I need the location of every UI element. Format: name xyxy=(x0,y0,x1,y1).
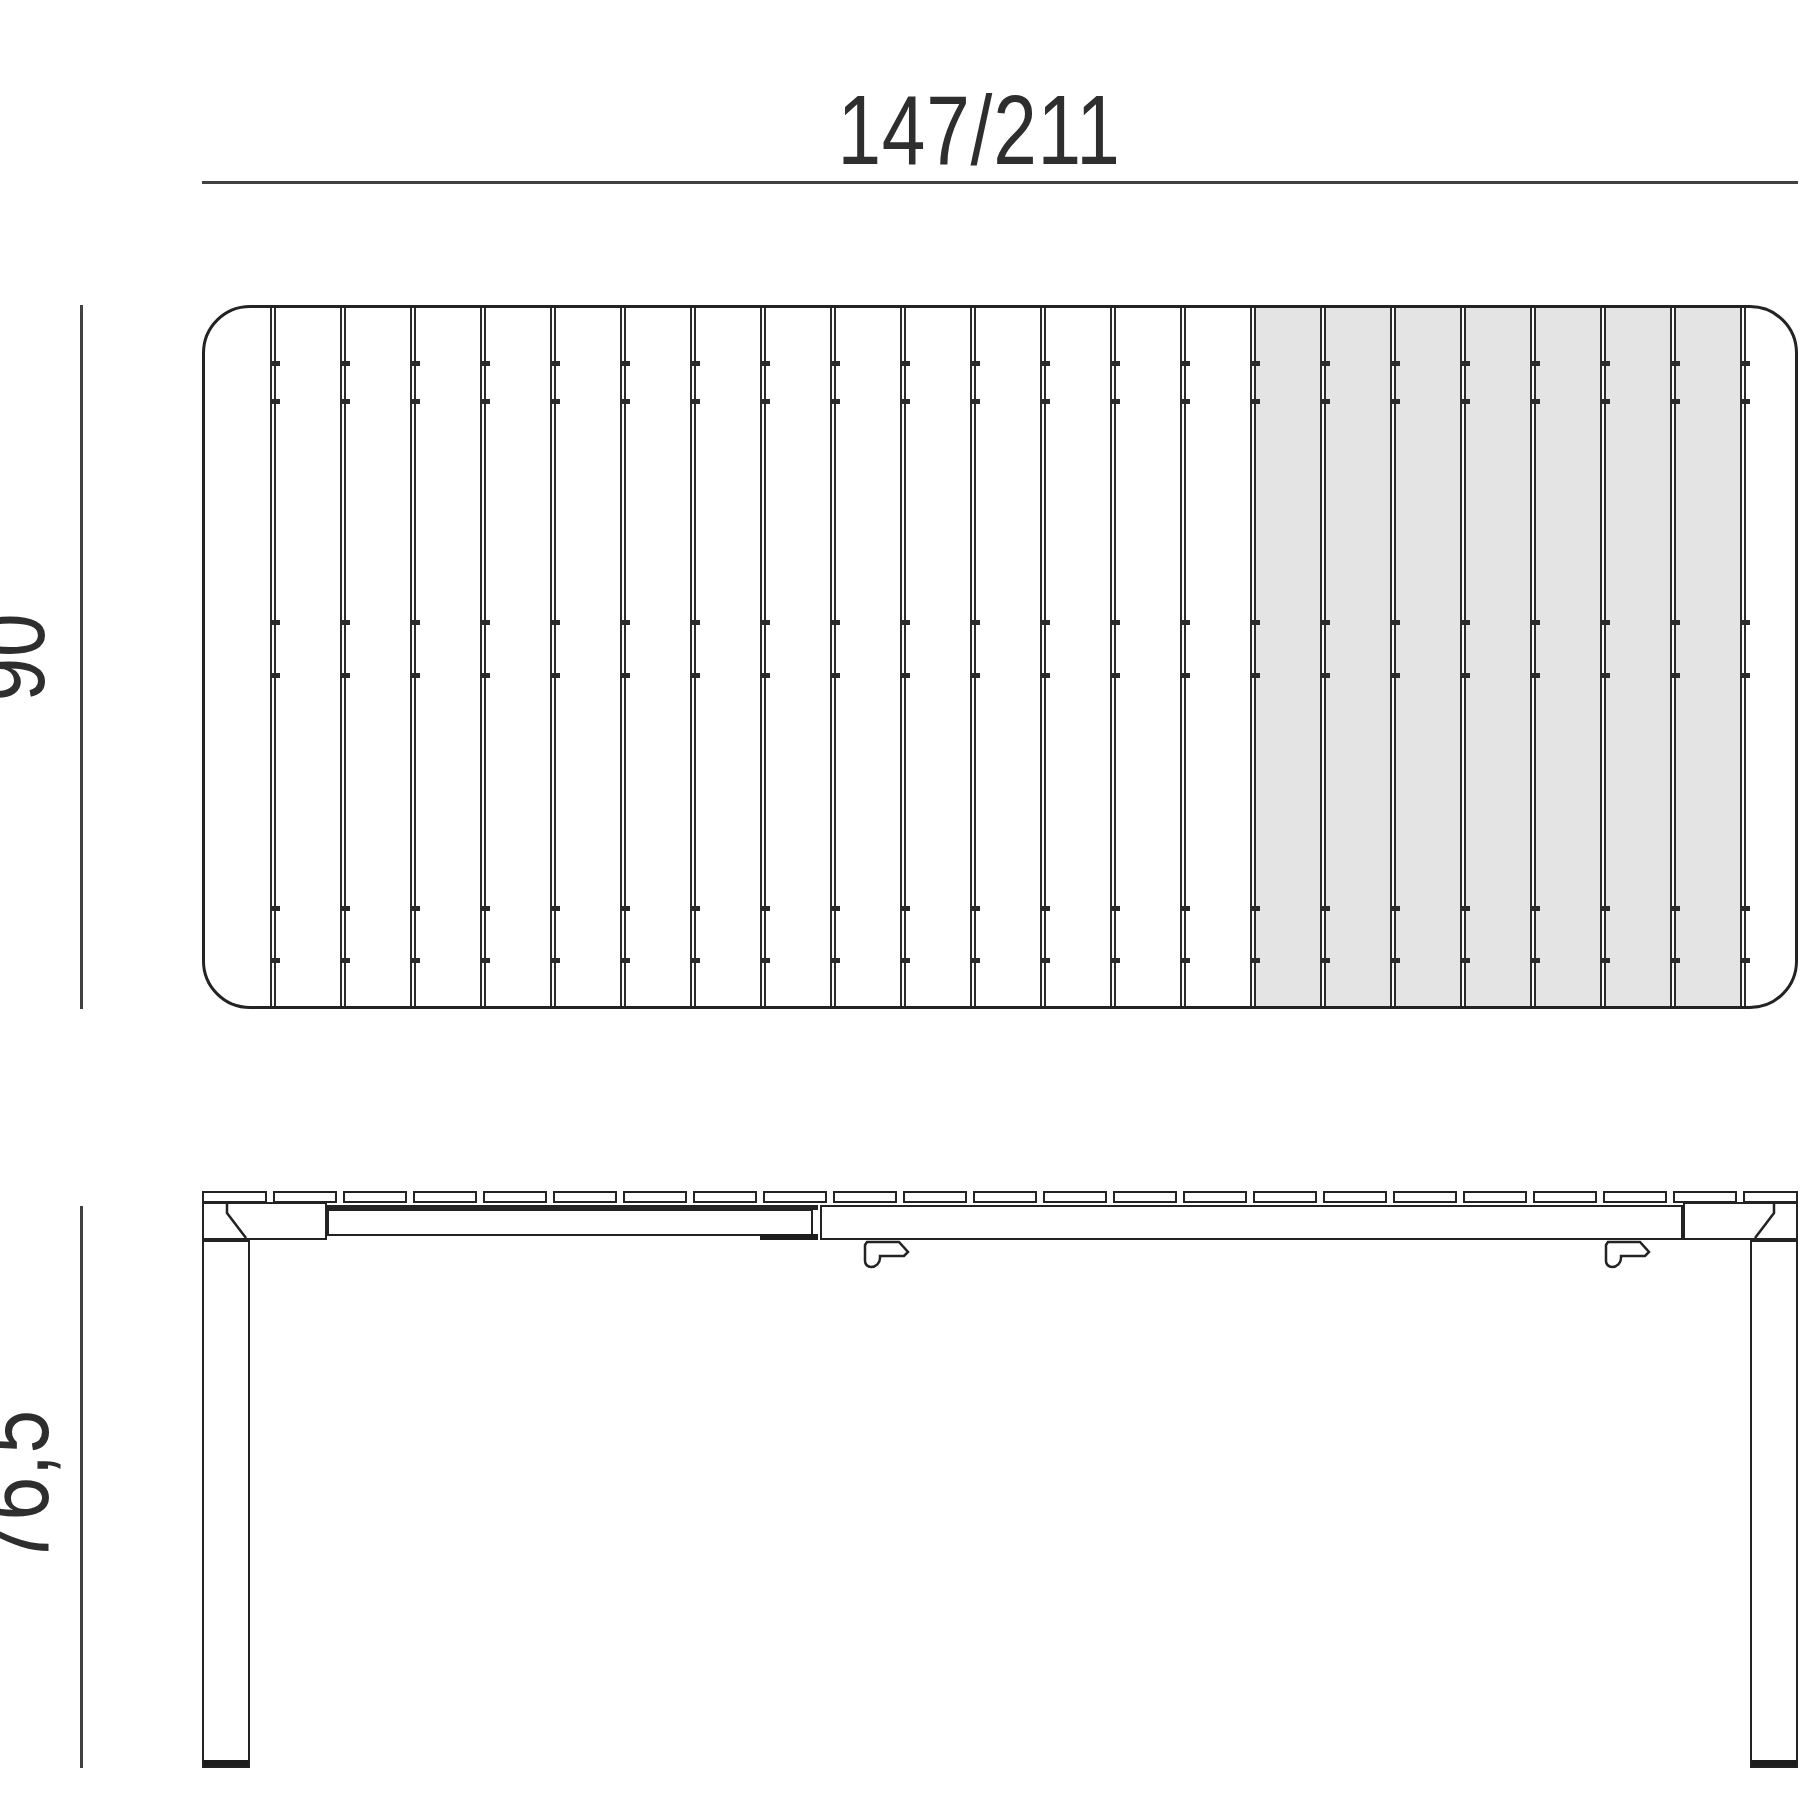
slat-clip-tick xyxy=(1320,620,1330,625)
slat-clip-tick xyxy=(1040,958,1050,963)
slat-gap xyxy=(1600,308,1606,1006)
slat-clip-tick xyxy=(620,673,630,678)
slat-clip-tick xyxy=(1040,673,1050,678)
slat-clip-tick xyxy=(410,620,420,625)
slat-clip-tick xyxy=(1320,399,1330,404)
slat-clip-tick xyxy=(1250,673,1260,678)
slat-clip-tick xyxy=(620,906,630,911)
height-dimension-line xyxy=(80,1206,83,1768)
slat-clip-tick xyxy=(550,958,560,963)
slat-gap xyxy=(690,308,696,1006)
slat-gap xyxy=(550,308,556,1006)
slat-clip-tick xyxy=(1740,958,1750,963)
height-dimension-label: 76,5 xyxy=(0,1409,63,1565)
leg-chamfer-line xyxy=(1755,1204,1774,1238)
slat-clip-tick xyxy=(970,399,980,404)
slat-clip-tick xyxy=(1040,906,1050,911)
slat-clip-tick xyxy=(830,399,840,404)
slat-clip-tick xyxy=(270,361,280,366)
slat-clip-tick xyxy=(1670,958,1680,963)
slat-clip-tick xyxy=(1110,620,1120,625)
slat-clip-tick xyxy=(900,958,910,963)
slat-clip-tick xyxy=(620,361,630,366)
slat-gap xyxy=(830,308,836,1006)
slat-clip-tick xyxy=(340,673,350,678)
slat-clip-tick xyxy=(1250,399,1260,404)
slat-clip-tick xyxy=(970,906,980,911)
slat-clip-tick xyxy=(1180,673,1190,678)
slat-clip-tick xyxy=(1390,673,1400,678)
slat-clip-tick xyxy=(340,906,350,911)
slat-clip-tick xyxy=(1460,958,1470,963)
slat-clip-tick xyxy=(1180,620,1190,625)
slat-clip-tick xyxy=(830,620,840,625)
slat-clip-tick xyxy=(1040,361,1050,366)
slat-gap xyxy=(340,308,346,1006)
slat-clip-tick xyxy=(1110,958,1120,963)
slat-clip-tick xyxy=(480,620,490,625)
depth-dimension-line xyxy=(80,305,83,1009)
slat-clip-tick xyxy=(1530,361,1540,366)
slat-clip-tick xyxy=(970,673,980,678)
slat-clip-tick xyxy=(1040,399,1050,404)
latch-hook-left xyxy=(865,1242,908,1267)
slat-clip-tick xyxy=(690,399,700,404)
slat-clip-tick xyxy=(830,361,840,366)
slat-clip-tick xyxy=(1670,673,1680,678)
slat-clip-tick xyxy=(550,361,560,366)
slat-clip-tick xyxy=(620,958,630,963)
length-dimension-line xyxy=(202,181,1798,184)
slat-gap xyxy=(1180,308,1186,1006)
slat-clip-tick xyxy=(410,361,420,366)
slat-clip-tick xyxy=(1530,906,1540,911)
slat-clip-tick xyxy=(690,906,700,911)
slat-clip-tick xyxy=(760,620,770,625)
slat-clip-tick xyxy=(550,620,560,625)
slat-clip-tick xyxy=(760,673,770,678)
slat-gap xyxy=(900,308,906,1006)
table-top-view xyxy=(202,305,1798,1009)
slat-gap xyxy=(620,308,626,1006)
slat-clip-tick xyxy=(830,958,840,963)
slat-clip-tick xyxy=(900,673,910,678)
slat-gap xyxy=(1740,308,1746,1006)
slat-clip-tick xyxy=(340,399,350,404)
slat-clip-tick xyxy=(1110,673,1120,678)
slat-clip-tick xyxy=(760,958,770,963)
slat-clip-tick xyxy=(1460,673,1470,678)
slat-clip-tick xyxy=(690,361,700,366)
slat-gap xyxy=(480,308,486,1006)
slat-clip-tick xyxy=(1600,399,1610,404)
slat-clip-tick xyxy=(1740,906,1750,911)
slat-clip-tick xyxy=(690,958,700,963)
slat-clip-tick xyxy=(1530,399,1540,404)
slat-clip-tick xyxy=(970,958,980,963)
slat-gap xyxy=(1670,308,1676,1006)
slat-clip-tick xyxy=(1460,399,1470,404)
slat-gap xyxy=(760,308,766,1006)
technical-drawing-canvas: 147/211 90 76,5 xyxy=(0,0,1820,1820)
slat-clip-tick xyxy=(1320,673,1330,678)
slat-clip-tick xyxy=(480,906,490,911)
slat-gap xyxy=(1320,308,1326,1006)
slat-clip-tick xyxy=(1180,399,1190,404)
slat-clip-tick xyxy=(340,361,350,366)
slat-clip-tick xyxy=(1670,620,1680,625)
slat-clip-tick xyxy=(1250,361,1260,366)
slat-gap xyxy=(1530,308,1536,1006)
slat-clip-tick xyxy=(1740,620,1750,625)
slat-clip-tick xyxy=(270,399,280,404)
slat-clip-tick xyxy=(1460,620,1470,625)
slat-clip-tick xyxy=(690,620,700,625)
slat-clip-tick xyxy=(900,361,910,366)
slat-gap xyxy=(1110,308,1116,1006)
slat-clip-tick xyxy=(1600,361,1610,366)
slat-gap xyxy=(1040,308,1046,1006)
slat-clip-tick xyxy=(1250,620,1260,625)
slat-clip-tick xyxy=(270,958,280,963)
latch-hook-right xyxy=(1606,1242,1649,1267)
slat-clip-tick xyxy=(760,399,770,404)
slat-clip-tick xyxy=(550,399,560,404)
slat-gap xyxy=(1460,308,1466,1006)
slat-clip-tick xyxy=(550,906,560,911)
slat-clip-tick xyxy=(1250,906,1260,911)
slat-gap xyxy=(1390,308,1396,1006)
slat-clip-tick xyxy=(340,620,350,625)
slat-clip-tick xyxy=(1390,361,1400,366)
slat-clip-tick xyxy=(410,673,420,678)
slat-clip-tick xyxy=(1740,673,1750,678)
slat-clip-tick xyxy=(1600,620,1610,625)
slat-clip-tick xyxy=(970,361,980,366)
slat-clip-tick xyxy=(410,906,420,911)
slat-clip-tick xyxy=(1250,958,1260,963)
slat-clip-tick xyxy=(480,958,490,963)
slat-clip-tick xyxy=(900,399,910,404)
length-dimension-label: 147/211 xyxy=(837,81,1120,179)
slat-clip-tick xyxy=(480,361,490,366)
slat-clip-tick xyxy=(830,673,840,678)
slat-clip-tick xyxy=(480,399,490,404)
slat-clip-tick xyxy=(1600,906,1610,911)
slat-clip-tick xyxy=(1460,906,1470,911)
slat-clip-tick xyxy=(1040,620,1050,625)
slat-clip-tick xyxy=(1600,958,1610,963)
slat-clip-tick xyxy=(1390,620,1400,625)
side-view-details xyxy=(202,1191,1798,1771)
slat-clip-tick xyxy=(1110,906,1120,911)
slat-clip-tick xyxy=(620,399,630,404)
slat-gap xyxy=(270,308,276,1006)
slat-clip-tick xyxy=(1110,361,1120,366)
slat-clip-tick xyxy=(270,673,280,678)
slat-clip-tick xyxy=(1320,906,1330,911)
slat-clip-tick xyxy=(1180,906,1190,911)
slat-clip-tick xyxy=(1670,906,1680,911)
slat-clip-tick xyxy=(830,906,840,911)
depth-dimension-label: 90 xyxy=(0,613,59,702)
slat-clip-tick xyxy=(970,620,980,625)
slat-gap xyxy=(410,308,416,1006)
slat-clip-tick xyxy=(760,906,770,911)
slat-clip-tick xyxy=(340,958,350,963)
slat-clip-tick xyxy=(1180,958,1190,963)
slat-clip-tick xyxy=(1390,906,1400,911)
slat-clip-tick xyxy=(1530,673,1540,678)
slat-clip-tick xyxy=(1110,399,1120,404)
slat-clip-tick xyxy=(1320,958,1330,963)
slat-clip-tick xyxy=(900,620,910,625)
slat-clip-tick xyxy=(270,906,280,911)
slat-clip-tick xyxy=(1180,361,1190,366)
slat-clip-tick xyxy=(1740,361,1750,366)
slat-clip-tick xyxy=(480,673,490,678)
slat-clip-tick xyxy=(270,620,280,625)
slat-clip-tick xyxy=(1320,361,1330,366)
slat-clip-tick xyxy=(1530,958,1540,963)
slat-clip-tick xyxy=(410,958,420,963)
slat-gap xyxy=(970,308,976,1006)
slat-clip-tick xyxy=(1600,673,1610,678)
slat-clip-tick xyxy=(1670,399,1680,404)
table-side-view xyxy=(202,1191,1798,1771)
leg-chamfer-line xyxy=(227,1204,246,1238)
slat-clip-tick xyxy=(1390,399,1400,404)
slat-clip-tick xyxy=(1740,399,1750,404)
slat-gap xyxy=(1250,308,1256,1006)
slat-clip-tick xyxy=(1530,620,1540,625)
slat-clip-tick xyxy=(1460,361,1470,366)
slat-clip-tick xyxy=(690,673,700,678)
slat-clip-tick xyxy=(760,361,770,366)
slat-clip-tick xyxy=(620,620,630,625)
slat-clip-tick xyxy=(1670,361,1680,366)
slat-clip-tick xyxy=(900,906,910,911)
slat-clip-tick xyxy=(410,399,420,404)
slat-clip-tick xyxy=(1390,958,1400,963)
slat-clip-tick xyxy=(550,673,560,678)
